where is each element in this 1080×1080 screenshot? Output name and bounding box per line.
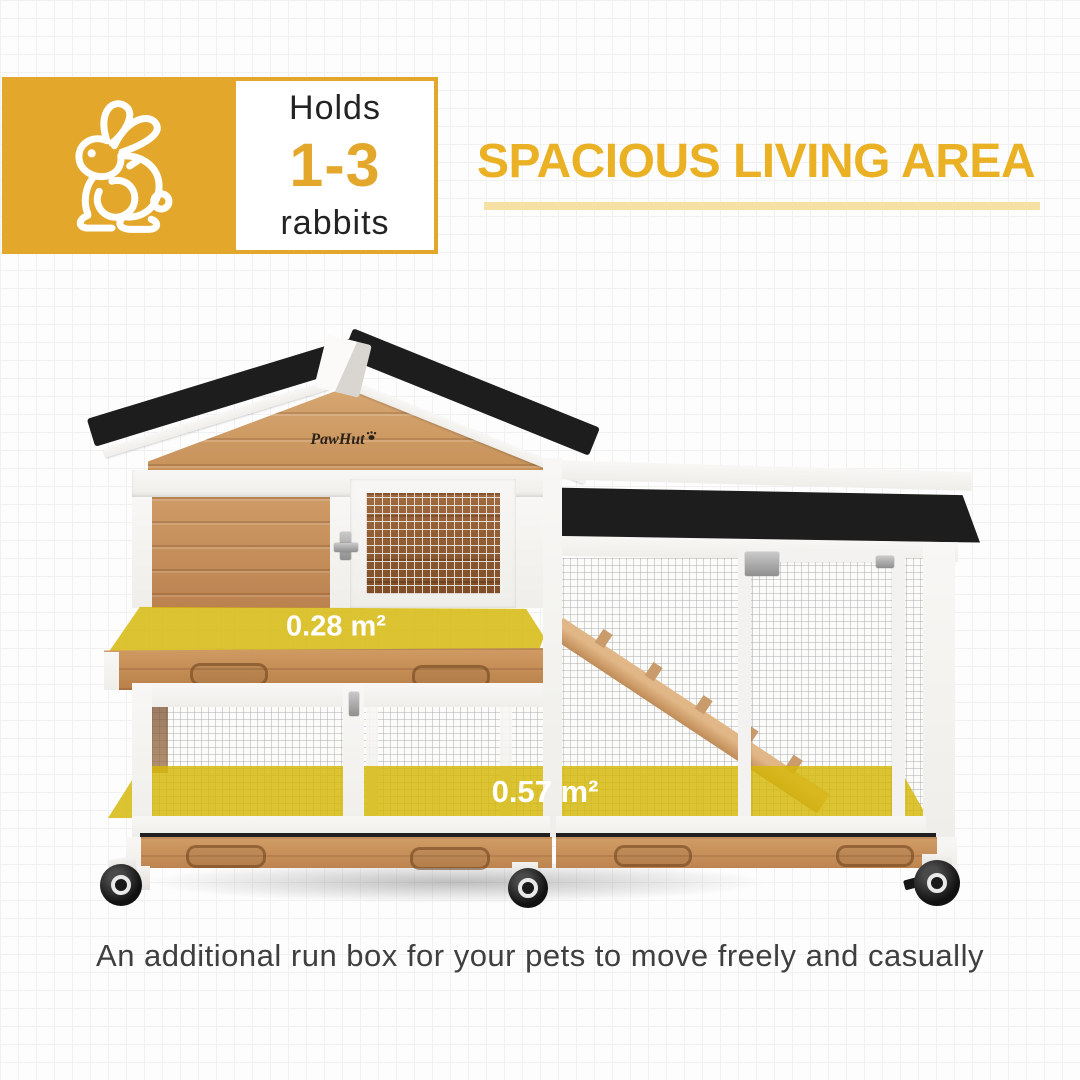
run-door-hinge [876,556,894,568]
run-kick-handle-left [614,845,692,867]
wheel-hub [518,878,538,898]
product-photo: PawHut [0,0,1080,1080]
infographic-canvas: Holds 1-3 rabbits SPACIOUS LIVING AREA P… [0,0,1080,1080]
brand-name: PawHut [310,431,364,448]
brand-logo: PawHut [296,431,392,449]
upper-door-mesh [366,493,500,594]
run-kick-handle-right [836,845,914,867]
run-door [738,549,905,832]
caster-wheel-middle [508,868,548,908]
run-roof-panel [544,481,980,545]
house-kick-handle-right [410,847,490,870]
house-kick-handle-left [186,845,266,868]
upper-left-post [132,497,152,608]
run-roof-fascia [546,460,972,491]
paw-icon [365,431,378,443]
lower-top-rail [132,683,550,707]
wheel-hub [927,873,947,893]
tray-rail-left-cap [104,652,119,690]
caster-wheel-left [100,864,142,906]
caster-wheel-right [914,860,960,906]
upper-door-latch-bar [334,543,358,552]
area-label-upper: 0.28 m² [286,611,386,644]
run-right-post [923,543,955,838]
lower-interior-shadow [152,707,168,773]
lower-door-latch [349,692,359,716]
caption-text: An additional run box for your pets to m… [0,938,1080,974]
lower-left-post [132,683,152,838]
upper-wood-panel [152,497,330,608]
wheel-hub [111,875,131,895]
area-label-floor: 0.57 m² [492,774,599,810]
run-door-hinge-latch [745,552,779,576]
